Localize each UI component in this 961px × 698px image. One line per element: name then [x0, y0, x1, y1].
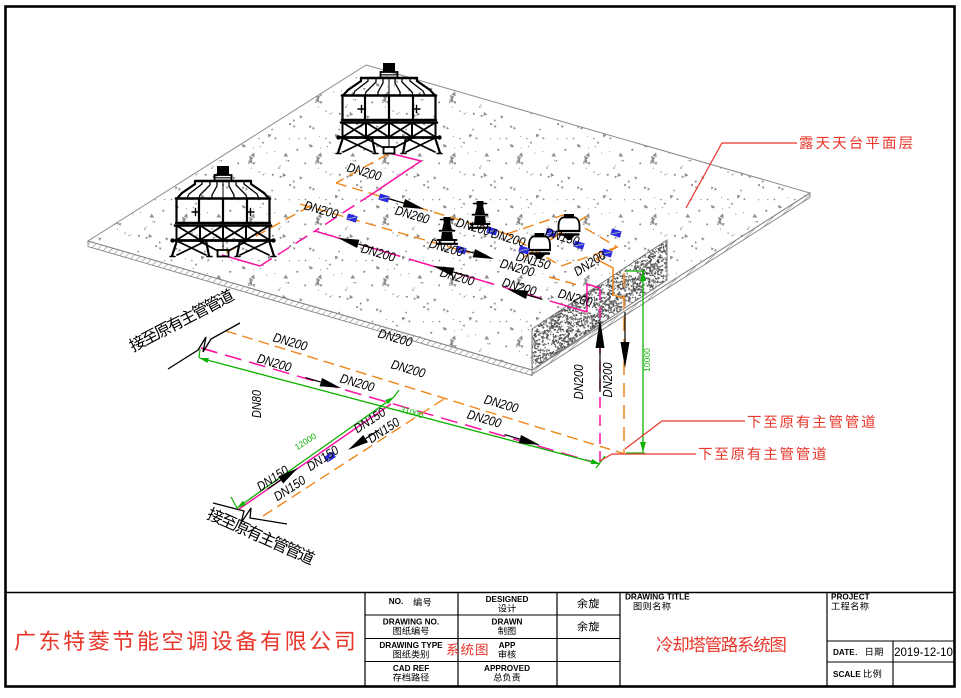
svg-text:DN200: DN200 — [600, 362, 615, 398]
svg-text:SCALE: SCALE — [833, 670, 861, 679]
svg-text:CAD REF: CAD REF — [393, 664, 429, 673]
svg-text:DESIGNED: DESIGNED — [486, 595, 529, 604]
svg-text:2019-12-10: 2019-12-10 — [894, 647, 953, 659]
svg-text:10000: 10000 — [642, 348, 652, 372]
svg-text:NO.: NO. — [389, 597, 404, 606]
svg-text:DN80: DN80 — [249, 389, 264, 418]
svg-text:DATE: DATE — [833, 648, 855, 657]
svg-text:DRAWING NO.: DRAWING NO. — [383, 618, 439, 627]
svg-text:APPROVED: APPROVED — [484, 664, 530, 673]
svg-text:DN200: DN200 — [571, 364, 586, 400]
svg-text:APP: APP — [499, 641, 516, 650]
svg-text:DRAWING TITLE: DRAWING TITLE — [625, 593, 690, 602]
svg-text:PROJECT: PROJECT — [831, 593, 870, 602]
svg-text:DRAWN: DRAWN — [492, 618, 523, 627]
svg-text:DRAWING TYPE: DRAWING TYPE — [379, 641, 443, 650]
